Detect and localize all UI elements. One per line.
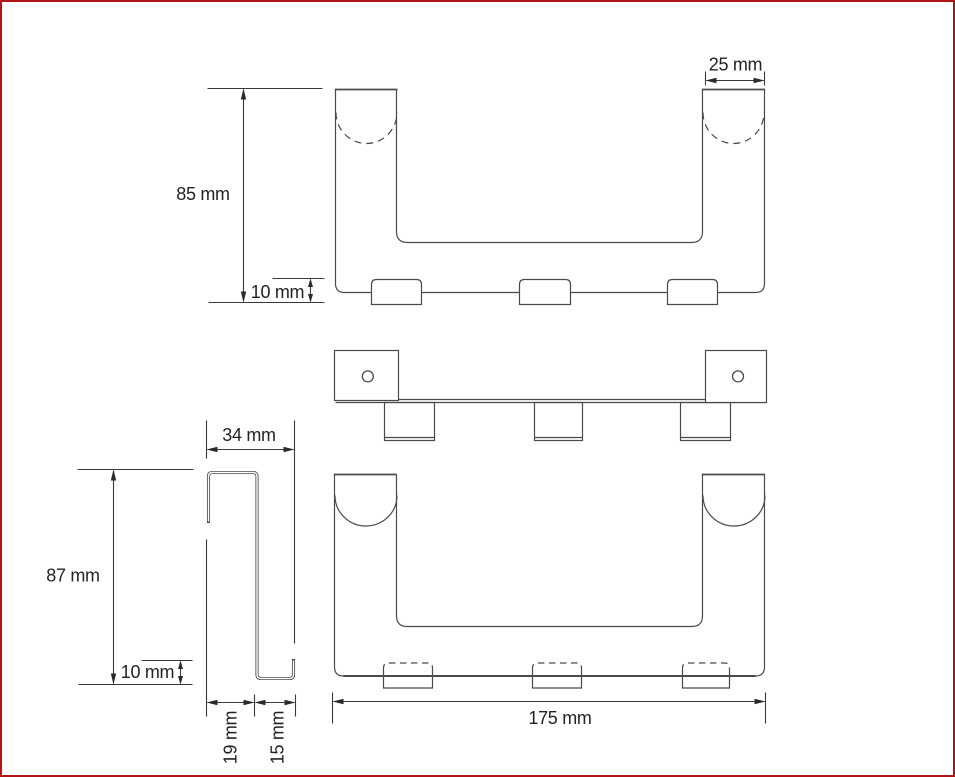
- svg-text:34 mm: 34 mm: [222, 425, 276, 445]
- svg-text:87 mm: 87 mm: [46, 566, 100, 586]
- svg-text:15 mm: 15 mm: [267, 711, 287, 765]
- svg-text:85 mm: 85 mm: [176, 184, 230, 204]
- svg-text:19 mm: 19 mm: [221, 711, 241, 765]
- svg-text:10 mm: 10 mm: [251, 282, 305, 302]
- svg-text:25 mm: 25 mm: [709, 55, 763, 75]
- svg-text:10 mm: 10 mm: [121, 662, 175, 682]
- svg-text:175 mm: 175 mm: [528, 708, 591, 728]
